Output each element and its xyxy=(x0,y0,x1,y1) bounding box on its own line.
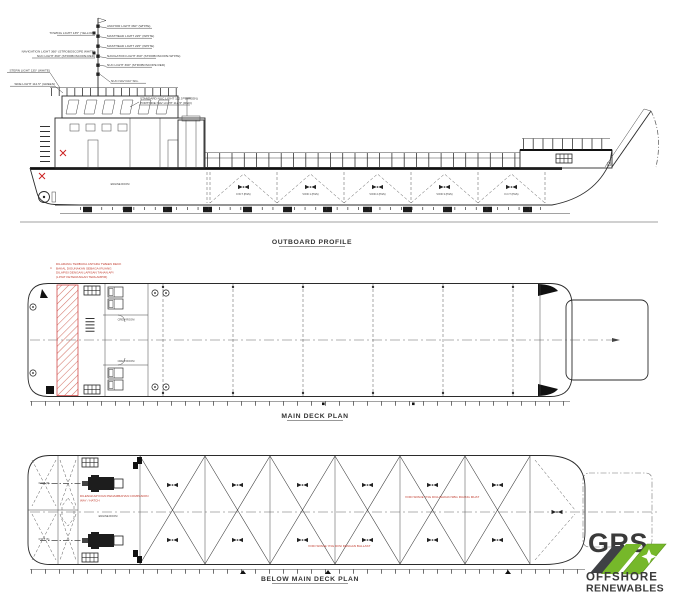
light-label: NUC LIGHT 360° (STROBOSCOPE RED) xyxy=(37,54,95,58)
stern-tanks: F.W.T (P) F.W.T (S) xyxy=(28,456,78,564)
hull-outline-below xyxy=(28,456,585,565)
view-title-outboard-profile: OUTBOARD PROFILE xyxy=(272,239,352,246)
propeller-hub xyxy=(43,196,45,198)
tank-label: F.O.T (P&S) xyxy=(505,192,519,196)
light-label: MASTHEAD LIGHT 225° (WHITE) xyxy=(107,34,154,38)
light-label: ANCHOR LIGHT 360° (WHITE) xyxy=(107,24,150,28)
stern-transom xyxy=(30,168,80,205)
light-label: STERN LIGHT 135° (WHITE) xyxy=(9,69,50,73)
main-deck-plan-view: 4 DILARANG TERBUKA ANTARA TWEEN DECK BAK… xyxy=(28,262,648,421)
ramp-swing-arc xyxy=(651,111,659,167)
engine-room-label: ENGINE ROOM xyxy=(111,182,130,186)
deck-fitting xyxy=(46,386,54,394)
red-note-marker: 4 xyxy=(50,266,52,270)
light-label: PORTSIDE NAV LIGHT 112.5° (RED) xyxy=(140,101,192,105)
bow-wedge xyxy=(538,284,558,296)
outboard-profile-view: F.W.T (P&S) VOID 1 (P&S) VOID 2 (P&S) VO… xyxy=(7,18,659,247)
logo-renewables-text: RENEWABLES xyxy=(586,583,664,595)
tank-label: F.W.T (P) xyxy=(39,481,50,485)
forecastle xyxy=(520,150,612,168)
general-arrangement-drawing: F.W.T (P&S) VOID 1 (P&S) VOID 2 (P&S) VO… xyxy=(0,0,673,600)
bow-ramp-outer xyxy=(612,111,651,167)
tank-label: F.W.T (P&S) xyxy=(236,192,250,196)
bow-wedge xyxy=(538,384,558,396)
light-labels-right: ANCHOR LIGHT 360° (WHITE) MASTHEAD LIGHT… xyxy=(100,24,180,83)
bow-winch xyxy=(556,154,572,163)
centerline-arrow xyxy=(612,338,620,342)
void-space-note: VOID SPACE YNG DIGUNAKAN SBG RUANG MUAT xyxy=(405,495,479,499)
engine-room-label: ENGINE ROOM xyxy=(99,514,118,518)
tank-label: VOID 3 (P&S) xyxy=(436,192,452,196)
light-label: SIDE LIGHT 112.5° (GREEN) xyxy=(14,82,55,86)
room-label: CREW ROOM xyxy=(118,359,135,363)
red-note-line: WAY / HATCH xyxy=(80,498,100,502)
tank-label: VOID 2 (P&S) xyxy=(369,192,385,196)
bow-ramp-inner xyxy=(605,109,644,167)
void-space-note: VOID SPACE YNG DIISI DENGAN BALLAST xyxy=(308,544,371,548)
light-label: NAVIGATION LIGHT 360° (STROBOSCOPE WHITE… xyxy=(107,54,180,58)
red-note-line: (LIHAT KETERANGAN TERLAMPIR) xyxy=(56,275,107,279)
below-main-deck-plan-view: F.W.T (P) F.W.T (S) DILENGKAPI DGN PENAM… xyxy=(28,456,660,584)
light-label: NUC LIGHT 360° (STROBOSCOPE RED) xyxy=(107,63,165,67)
red-hatched-area xyxy=(57,285,78,396)
bow-ramp-tip xyxy=(644,109,651,111)
view-title-main-deck-plan: MAIN DECK PLAN xyxy=(281,413,348,420)
light-label: MASTHEAD LIGHT 225° (WHITE) xyxy=(107,44,154,48)
grs-logo: GRS OFFSHORE RENEWABLES xyxy=(586,528,666,595)
light-label: TOWING LIGHT 135° (YELLOW) xyxy=(49,31,95,35)
light-labels-left: TOWING LIGHT 135° (YELLOW) NAVIGATION LI… xyxy=(7,31,95,93)
rudder xyxy=(52,192,56,202)
deck-fitting xyxy=(40,289,48,298)
view-title-below-main-deck-plan: BELOW MAIN DECK PLAN xyxy=(261,576,359,583)
red-note: 4 DILARANG TERBUKA ANTARA TWEEN DECK BAK… xyxy=(50,262,122,279)
light-labels-roof: STANDARD NUC LIGHT 112.5° (GREEN) PORTSI… xyxy=(130,97,198,108)
red-x-mark xyxy=(39,173,45,179)
room-label: CREW ROOM xyxy=(118,318,135,322)
red-x-mark xyxy=(60,150,66,156)
light-label: NUC NAV DAY SIG. xyxy=(111,79,139,83)
void-tanks: VOID SPACE YNG DIGUNAKAN SBG RUANG MUAT … xyxy=(137,456,575,564)
tank-label: VOID 1 (P&S) xyxy=(302,192,318,196)
hull-internal-structure xyxy=(207,172,545,203)
drawing-sheet: F.W.T (P&S) VOID 1 (P&S) VOID 2 (P&S) VO… xyxy=(0,0,673,600)
